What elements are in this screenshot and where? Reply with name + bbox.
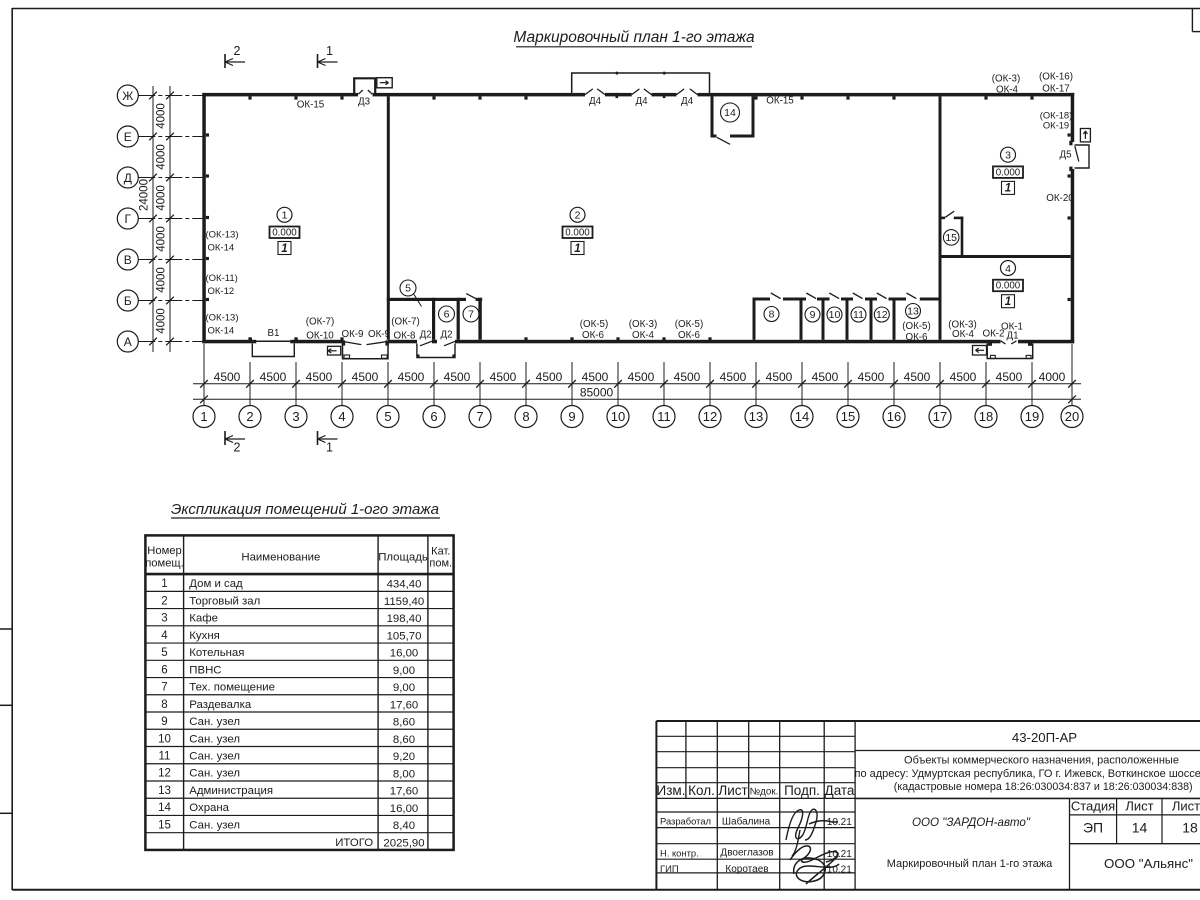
svg-text:3: 3 — [292, 409, 299, 424]
svg-text:7: 7 — [468, 309, 474, 321]
svg-text:ЭП: ЭП — [1083, 820, 1103, 836]
svg-text:4000: 4000 — [156, 144, 168, 170]
svg-text:В: В — [124, 253, 132, 267]
svg-text:ОК-10: ОК-10 — [306, 331, 334, 342]
svg-text:(ОК-11): (ОК-11) — [206, 273, 238, 284]
svg-text:2025,90: 2025,90 — [383, 837, 424, 849]
svg-text:6: 6 — [444, 309, 450, 321]
svg-text:85000: 85000 — [580, 386, 614, 400]
svg-text:1: 1 — [1005, 183, 1011, 195]
svg-text:ОК-15: ОК-15 — [766, 96, 794, 107]
svg-text:1: 1 — [1005, 296, 1011, 308]
svg-text:ОК-6: ОК-6 — [582, 330, 605, 341]
svg-text:7: 7 — [476, 409, 483, 424]
svg-text:Н. контр.: Н. контр. — [660, 847, 699, 858]
svg-text:1: 1 — [200, 409, 207, 424]
svg-text:4000: 4000 — [156, 267, 168, 293]
svg-text:4500: 4500 — [490, 370, 517, 384]
svg-text:пом.: пом. — [429, 557, 452, 569]
svg-text:4000: 4000 — [1039, 370, 1066, 384]
svg-text:4500: 4500 — [996, 370, 1023, 384]
svg-text:Наименование: Наименование — [241, 551, 320, 563]
svg-text:ОК-15: ОК-15 — [297, 100, 325, 111]
svg-text:4500: 4500 — [674, 370, 701, 384]
svg-text:А: А — [124, 335, 132, 349]
svg-text:9: 9 — [810, 309, 816, 321]
svg-text:17,60: 17,60 — [390, 699, 419, 711]
svg-text:8,40: 8,40 — [393, 820, 415, 832]
svg-text:Сан. узел: Сан. узел — [189, 768, 240, 780]
svg-text:ОК-17: ОК-17 — [1042, 84, 1070, 95]
svg-text:13: 13 — [158, 785, 171, 797]
svg-text:Тех. помещение: Тех. помещение — [189, 682, 275, 694]
svg-text:9,00: 9,00 — [393, 665, 415, 677]
svg-text:13: 13 — [907, 306, 919, 318]
svg-text:16,00: 16,00 — [390, 648, 419, 660]
svg-text:12: 12 — [158, 768, 171, 780]
svg-text:4500: 4500 — [352, 370, 379, 384]
svg-text:16: 16 — [887, 409, 901, 424]
svg-text:15: 15 — [158, 819, 171, 831]
svg-text:5: 5 — [405, 283, 411, 295]
svg-text:ОК-4: ОК-4 — [996, 85, 1019, 96]
svg-text:14: 14 — [795, 409, 809, 424]
svg-text:Г: Г — [125, 212, 132, 226]
svg-text:434,40: 434,40 — [387, 579, 422, 591]
svg-text:4500: 4500 — [766, 370, 793, 384]
svg-text:ОК-4: ОК-4 — [952, 329, 975, 340]
svg-text:(ОК-13): (ОК-13) — [206, 230, 239, 241]
svg-text:14: 14 — [158, 802, 171, 814]
svg-text:(ОК-16): (ОК-16) — [1039, 72, 1073, 83]
svg-text:2: 2 — [575, 210, 581, 222]
svg-text:Изм.: Изм. — [657, 783, 686, 798]
svg-text:Лист: Лист — [718, 783, 747, 798]
svg-text:Экспликация помещений 1-ого эт: Экспликация помещений 1-ого этажа — [171, 501, 439, 518]
svg-text:43-20П-АР: 43-20П-АР — [1012, 730, 1077, 745]
svg-text:Лист: Лист — [1125, 799, 1153, 814]
svg-text:Кол.: Кол. — [688, 783, 715, 798]
svg-text:Д4: Д4 — [635, 96, 648, 107]
svg-text:Объекты коммерческого назначен: Объекты коммерческого назначения, распол… — [904, 755, 1179, 767]
svg-text:Дата: Дата — [825, 783, 855, 798]
svg-text:4500: 4500 — [582, 370, 609, 384]
svg-text:198,40: 198,40 — [387, 613, 422, 625]
svg-text:4: 4 — [1005, 263, 1011, 275]
svg-text:18: 18 — [1182, 820, 1198, 836]
svg-text:6: 6 — [161, 664, 167, 676]
svg-text:4: 4 — [161, 630, 168, 642]
svg-text:11: 11 — [853, 309, 864, 321]
svg-text:1: 1 — [574, 243, 580, 255]
svg-text:17: 17 — [933, 409, 947, 424]
svg-text:Б: Б — [124, 294, 132, 308]
svg-text:(ОК-3): (ОК-3) — [629, 319, 658, 330]
svg-text:14: 14 — [724, 107, 736, 119]
svg-text:Д1: Д1 — [1006, 330, 1018, 341]
svg-text:8,60: 8,60 — [393, 734, 415, 746]
svg-text:9,00: 9,00 — [393, 682, 415, 694]
svg-text:16,00: 16,00 — [390, 803, 419, 815]
svg-text:10: 10 — [829, 309, 841, 321]
svg-text:ОК-19: ОК-19 — [1043, 120, 1069, 131]
svg-text:(кадастровые номера 18:26:0300: (кадастровые номера 18:26:030034:837 и 1… — [894, 781, 1193, 793]
svg-text:4500: 4500 — [950, 370, 977, 384]
svg-text:Администрация: Администрация — [189, 785, 273, 797]
svg-text:4500: 4500 — [904, 370, 931, 384]
svg-text:3: 3 — [161, 613, 167, 625]
svg-text:8,00: 8,00 — [393, 768, 415, 780]
svg-text:Д3: Д3 — [358, 97, 371, 108]
svg-text:4500: 4500 — [444, 370, 471, 384]
svg-text:18: 18 — [979, 409, 993, 424]
svg-text:2: 2 — [234, 44, 241, 58]
svg-text:11: 11 — [657, 409, 671, 424]
svg-text:Маркировочный план 1-го этажа: Маркировочный план 1-го этажа — [513, 29, 755, 46]
svg-text:2: 2 — [161, 595, 167, 607]
svg-text:17,60: 17,60 — [390, 786, 419, 798]
svg-text:по адресу: Удмуртская республи: по адресу: Удмуртская республика, ГО г. … — [854, 768, 1200, 780]
svg-text:(ОК-5): (ОК-5) — [580, 319, 609, 330]
svg-text:Ж: Ж — [122, 89, 133, 103]
svg-text:Подп.: Подп. — [784, 783, 820, 798]
svg-text:4500: 4500 — [306, 370, 333, 384]
svg-text:4500: 4500 — [812, 370, 839, 384]
svg-text:8: 8 — [161, 699, 167, 711]
svg-text:10: 10 — [158, 733, 171, 745]
svg-text:5: 5 — [161, 647, 167, 659]
svg-text:Е: Е — [124, 130, 132, 144]
svg-text:ОК-8: ОК-8 — [393, 331, 416, 342]
svg-text:Площадь: Площадь — [378, 551, 428, 563]
svg-text:Разработал: Разработал — [660, 815, 711, 826]
svg-text:20: 20 — [1065, 409, 1079, 424]
svg-text:Д5: Д5 — [1059, 150, 1072, 161]
svg-text:(ОК-5): (ОК-5) — [675, 319, 704, 330]
svg-text:ООО "Альянс": ООО "Альянс" — [1104, 856, 1193, 871]
svg-text:Кат.: Кат. — [431, 546, 450, 558]
svg-text:Листов: Листов — [1172, 799, 1200, 814]
svg-text:4500: 4500 — [858, 370, 885, 384]
svg-text:Сан. узел: Сан. узел — [189, 716, 240, 728]
svg-text:ОК-9: ОК-9 — [368, 329, 390, 340]
svg-text:11: 11 — [159, 751, 171, 763]
svg-text:0.000: 0.000 — [272, 227, 297, 238]
svg-text:12: 12 — [703, 409, 717, 424]
svg-text:Дом и сад: Дом и сад — [189, 578, 243, 590]
svg-text:4500: 4500 — [628, 370, 655, 384]
svg-text:ОК-14: ОК-14 — [208, 326, 235, 337]
svg-text:Д4: Д4 — [589, 96, 602, 107]
svg-text:Стадия: Стадия — [1071, 799, 1115, 814]
svg-text:ОК-6: ОК-6 — [678, 330, 701, 341]
svg-text:13: 13 — [749, 409, 763, 424]
svg-text:Д4: Д4 — [681, 96, 694, 107]
svg-text:ИТОГО: ИТОГО — [335, 837, 373, 849]
svg-text:Котельная: Котельная — [189, 647, 244, 659]
svg-text:9,20: 9,20 — [393, 751, 415, 763]
svg-text:4000: 4000 — [156, 103, 168, 129]
svg-text:Сан. узел: Сан. узел — [189, 819, 240, 831]
svg-text:15: 15 — [841, 409, 855, 424]
svg-text:В1: В1 — [268, 328, 280, 339]
svg-text:7: 7 — [161, 682, 167, 694]
svg-text:9: 9 — [568, 409, 575, 424]
svg-text:Шабалина: Шабалина — [722, 815, 771, 827]
svg-text:9: 9 — [161, 716, 167, 728]
svg-text:1: 1 — [326, 44, 333, 58]
svg-text:ГИП: ГИП — [660, 863, 679, 874]
svg-text:№док.: №док. — [750, 787, 779, 798]
svg-text:3: 3 — [1005, 150, 1011, 162]
svg-text:8: 8 — [769, 309, 775, 321]
svg-text:ОК-9: ОК-9 — [341, 329, 363, 340]
svg-text:Торговый зал: Торговый зал — [189, 595, 260, 607]
svg-text:Номер: Номер — [147, 545, 181, 557]
svg-text:4000: 4000 — [156, 226, 168, 252]
svg-text:15: 15 — [945, 232, 957, 244]
svg-text:10.21: 10.21 — [827, 849, 852, 860]
svg-text:1: 1 — [161, 578, 167, 590]
svg-text:0.000: 0.000 — [565, 227, 590, 238]
svg-text:4500: 4500 — [720, 370, 747, 384]
svg-text:(ОК-7): (ОК-7) — [306, 317, 335, 328]
svg-text:24000: 24000 — [139, 179, 151, 211]
svg-text:2: 2 — [246, 409, 253, 424]
svg-text:Охрана: Охрана — [189, 802, 229, 814]
svg-text:4500: 4500 — [536, 370, 563, 384]
svg-text:(ОК-5): (ОК-5) — [902, 321, 931, 332]
svg-text:1159,40: 1159,40 — [384, 596, 424, 608]
svg-text:4500: 4500 — [260, 370, 287, 384]
svg-text:Двоеглазов: Двоеглазов — [720, 848, 773, 859]
svg-text:Сан. узел: Сан. узел — [189, 733, 240, 745]
svg-text:(ОК-3): (ОК-3) — [992, 74, 1021, 85]
svg-text:Д2: Д2 — [441, 329, 453, 340]
svg-text:Сан. узел: Сан. узел — [189, 751, 240, 763]
svg-text:4000: 4000 — [156, 185, 168, 211]
svg-text:10.21: 10.21 — [827, 865, 852, 876]
svg-text:10: 10 — [611, 409, 625, 424]
svg-text:ОК-4: ОК-4 — [632, 330, 655, 341]
svg-text:5: 5 — [384, 409, 391, 424]
svg-text:4500: 4500 — [398, 370, 425, 384]
svg-text:0.000: 0.000 — [996, 281, 1021, 292]
svg-text:19: 19 — [1025, 409, 1039, 424]
svg-text:4500: 4500 — [214, 370, 241, 384]
svg-text:ОК-14: ОК-14 — [208, 243, 235, 254]
svg-text:помещ.: помещ. — [145, 557, 184, 569]
svg-text:12: 12 — [876, 309, 888, 321]
svg-text:10.21: 10.21 — [827, 817, 852, 828]
svg-text:(ОК-13): (ОК-13) — [206, 313, 239, 324]
svg-text:8,60: 8,60 — [393, 717, 415, 729]
svg-text:Кухня: Кухня — [189, 630, 220, 642]
svg-text:ООО "ЗАРДОН-авто": ООО "ЗАРДОН-авто" — [912, 816, 1031, 829]
svg-text:4: 4 — [338, 409, 345, 424]
svg-text:2: 2 — [234, 441, 241, 455]
svg-text:ПВНС: ПВНС — [189, 664, 221, 676]
svg-text:Коротаев: Коротаев — [725, 864, 768, 875]
svg-text:Маркировочный план 1-го этажа: Маркировочный план 1-го этажа — [887, 858, 1053, 870]
svg-text:ОК-12: ОК-12 — [208, 286, 235, 297]
svg-text:105,70: 105,70 — [387, 630, 422, 642]
svg-text:ОК-6: ОК-6 — [905, 332, 928, 343]
svg-text:6: 6 — [430, 409, 437, 424]
svg-text:1: 1 — [326, 441, 333, 455]
svg-text:Раздевалка: Раздевалка — [189, 699, 252, 711]
svg-text:4000: 4000 — [156, 308, 168, 334]
svg-text:(ОК-7): (ОК-7) — [391, 317, 420, 328]
svg-text:1: 1 — [281, 243, 287, 255]
svg-text:8: 8 — [522, 409, 529, 424]
svg-text:ОК-20: ОК-20 — [1046, 193, 1074, 204]
svg-text:0.000: 0.000 — [996, 167, 1021, 178]
svg-text:Кафе: Кафе — [189, 613, 218, 625]
svg-text:1: 1 — [282, 210, 288, 222]
svg-text:14: 14 — [1132, 820, 1148, 836]
svg-text:Д: Д — [124, 171, 132, 185]
svg-text:Д2: Д2 — [420, 329, 432, 340]
